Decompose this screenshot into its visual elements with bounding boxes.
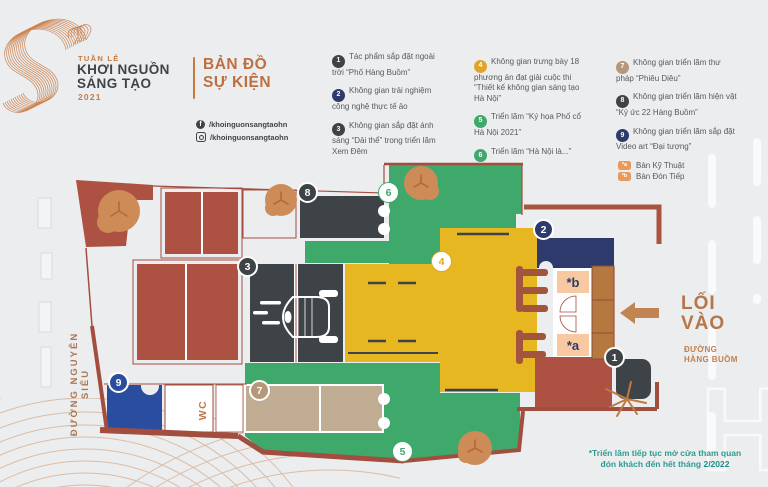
title-divider — [193, 57, 195, 99]
facebook-handle: /khoinguonsangtaohn — [209, 120, 287, 129]
door-arc — [141, 377, 159, 395]
instagram-link[interactable]: /khoinguonsangtaohn — [196, 132, 288, 142]
legend-dot-1: 1 — [332, 55, 345, 68]
legend-dot-2: 2 — [332, 89, 345, 102]
legend-dot-5: 5 — [474, 115, 487, 128]
social-links: f /khoinguonsangtaohn /khoinguonsangtaoh… — [196, 120, 288, 142]
legend-item-2: 2Không gian trải nghiệm công nghệ thực t… — [332, 86, 438, 112]
map-marker-4: 4 — [431, 251, 452, 272]
legend-dot-7: 7 — [616, 61, 629, 74]
street-label-nguyen-sieu: ĐƯỜNG NGUYỄN SIÊU — [69, 324, 91, 444]
map-desk-a: *a — [557, 334, 589, 356]
map-marker-7: 7 — [249, 380, 270, 401]
street-buildings-left — [38, 198, 52, 387]
event-year: 2021 — [78, 92, 102, 102]
legend-item-1: 1Tác phẩm sắp đặt ngoài trời “Phố Hàng B… — [332, 52, 438, 78]
legend-item-9: 9Không gian triển lãm sắp đặt Video art … — [616, 127, 738, 153]
footer-note: *Triển lãm tiếp tục mở cửa tham quan đón… — [565, 448, 765, 470]
map-marker-1: 1 — [604, 347, 625, 368]
event-name-line2: SÁNG TẠO — [77, 76, 151, 91]
legend-dot-9: 9 — [616, 129, 629, 142]
legend-desk-a: *a Bàn Kỹ Thuật — [618, 161, 738, 170]
map-marker-9: 9 — [108, 372, 129, 393]
event-name-line1: KHƠI NGUỒN — [77, 62, 170, 77]
legend-desk-b: *b Bàn Đón Tiếp — [618, 172, 738, 181]
legend-item-4: 4Không gian trưng bày 18 phương án đạt g… — [474, 57, 586, 104]
map-marker-2: 2 — [533, 219, 554, 240]
entrance-label: LỐI VÀO — [681, 294, 725, 333]
legend-column-2: 4Không gian trưng bày 18 phương án đạt g… — [474, 57, 586, 170]
map-marker-8: 8 — [297, 182, 318, 203]
instagram-icon — [196, 132, 206, 142]
event-map-poster: H — [0, 0, 768, 487]
map-marker-5: 5 — [392, 441, 413, 462]
legend-dot-8: 8 — [616, 95, 629, 108]
desk-b-icon: *b — [618, 172, 631, 181]
desk-a-icon: *a — [618, 161, 631, 170]
legend-dot-3: 3 — [332, 123, 345, 136]
entrance-corridor — [592, 266, 614, 359]
zone-room-8 — [300, 196, 384, 238]
street-label-hang-buom: ĐƯỜNG HÀNG BUỒM — [684, 345, 738, 364]
page-title: BẢN ĐỒ SỰ KIỆN — [203, 56, 271, 91]
legend-column-3: 7Không gian triển lãm thư pháp “Phiêu Di… — [616, 58, 738, 183]
legend-column-1: 1Tác phẩm sắp đặt ngoài trời “Phố Hàng B… — [332, 52, 438, 165]
map-desk-b: *b — [557, 271, 589, 293]
legend-item-6: 6Triển lãm “Hà Nội là...” — [474, 147, 586, 163]
legend-item-5: 5Triển lãm “Ký họa Phố cổ Hà Nội 2021” — [474, 112, 586, 138]
entrance-arrow-icon — [620, 302, 659, 324]
legend-dot-4: 4 — [474, 60, 487, 73]
facebook-icon: f — [196, 120, 205, 129]
legend-item-8: 8Không gian triển lãm hiện vật “Ký ức 22… — [616, 92, 738, 118]
legend-item-3: 3Không gian sắp đặt ánh sáng “Dải thể” t… — [332, 121, 438, 158]
wc-label: WC — [197, 397, 209, 423]
map-marker-6: 6 — [378, 182, 399, 203]
instagram-handle: /khoinguonsangtaohn — [210, 133, 288, 142]
legend-item-7: 7Không gian triển lãm thư pháp “Phiêu Di… — [616, 58, 738, 84]
map-marker-3: 3 — [237, 256, 258, 277]
zone-gap-room — [216, 385, 243, 432]
facebook-link[interactable]: f /khoinguonsangtaohn — [196, 120, 288, 129]
legend-dot-6: 6 — [474, 149, 487, 162]
